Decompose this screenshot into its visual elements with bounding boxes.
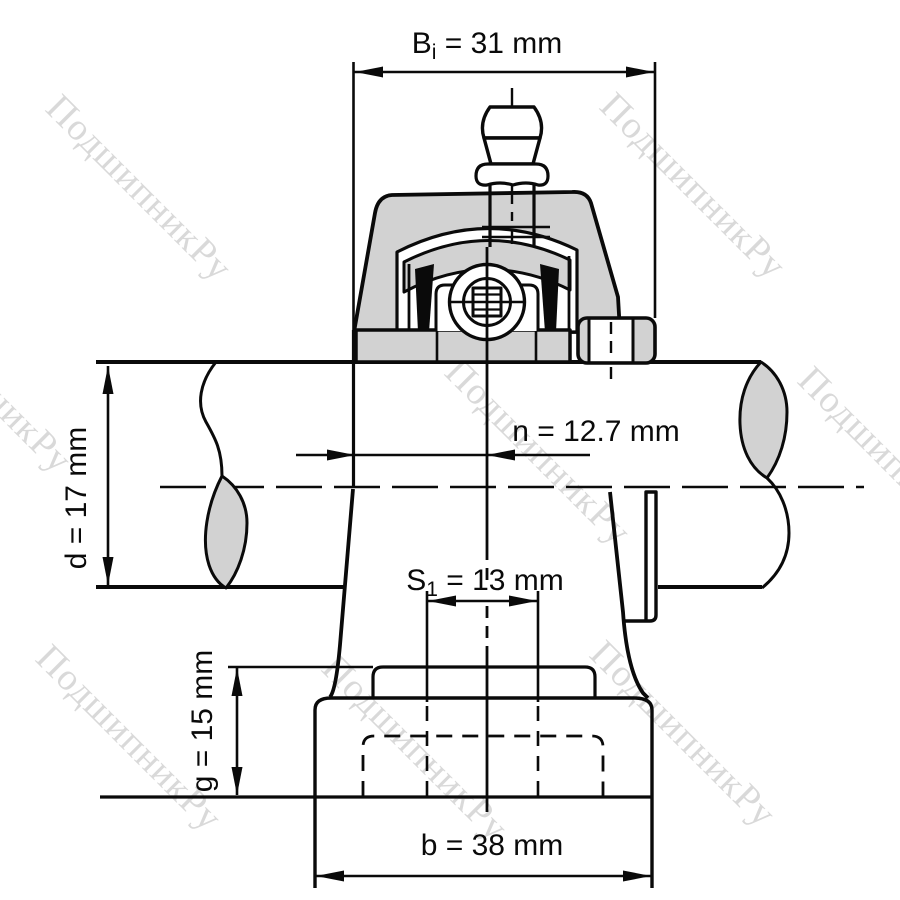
break-lens	[205, 476, 247, 588]
dimension-b: b = 38 mm	[315, 829, 652, 882]
dimension-label-bi: Bi = 31 mm	[412, 27, 563, 64]
dimension-g: g = 15 mm	[186, 650, 373, 795]
dimension-label-s1: S1 = 13 mm	[406, 564, 564, 601]
arrowhead	[626, 67, 654, 78]
base-slot-hidden-outline	[363, 736, 603, 797]
break-lens	[740, 362, 787, 478]
grease-fitting-collar	[476, 164, 548, 185]
dimension-label-d: d = 17 mm	[60, 427, 93, 570]
dimension-label-g: g = 15 mm	[186, 650, 219, 793]
arrowhead	[316, 871, 344, 882]
insert-bottom-flange	[356, 330, 570, 362]
shaft-break-right	[740, 362, 789, 588]
set-screw-boss	[578, 318, 655, 379]
dimension-d: d = 17 mm	[60, 366, 114, 585]
bearing-technical-drawing: Bi = 31 mm n = 12.7 mm d = 17 mm S1 = 13…	[0, 0, 900, 900]
dimension-label-b: b = 38 mm	[421, 829, 564, 862]
shaft-break-left	[201, 362, 247, 588]
dimension-s1: S1 = 13 mm	[406, 564, 564, 607]
bearing-drawing-page: ПодшипникРу ПодшипникРу ПодшипникРу Подш…	[0, 0, 900, 900]
housing-lower	[100, 489, 656, 888]
arrowhead	[355, 67, 383, 78]
base-shoulder	[373, 667, 595, 697]
arrowhead	[487, 450, 515, 461]
arrowhead	[232, 767, 243, 795]
dimension-label-n: n = 12.7 mm	[512, 415, 680, 448]
break-curve	[201, 362, 222, 476]
arrowhead	[232, 668, 243, 696]
side-lug	[625, 492, 656, 621]
break-curve	[762, 478, 789, 588]
arrowhead	[327, 450, 355, 461]
arrowhead	[103, 557, 114, 585]
grease-fitting-head	[482, 107, 541, 138]
arrowhead	[509, 596, 537, 607]
arrowhead	[103, 366, 114, 394]
grease-fitting-taper	[484, 138, 540, 164]
arrowhead	[623, 871, 651, 882]
pillar-right-edge	[610, 492, 648, 698]
